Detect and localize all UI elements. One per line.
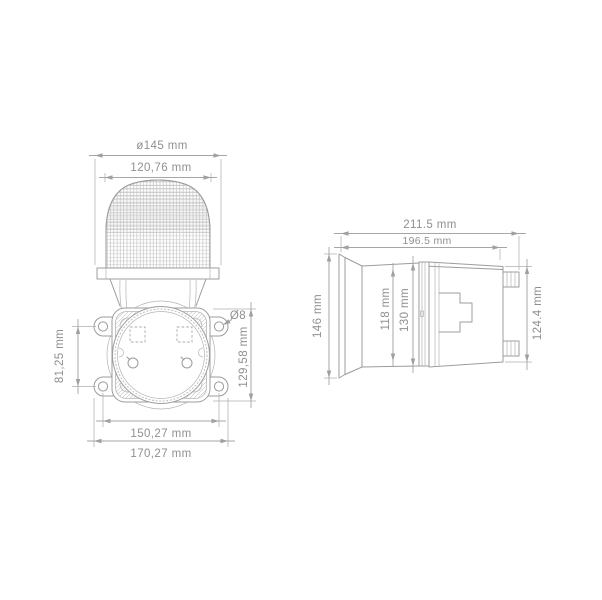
bracket-top <box>503 272 519 287</box>
dim-label-flange-diameter: ø145 mm <box>136 140 187 152</box>
side-view: 211.5 mm 196.5 mm 146 mm 118 mm 130 mm <box>312 219 544 385</box>
bracket-bottom <box>503 341 519 356</box>
dim-label-front-diameter: 146 mm <box>312 294 324 338</box>
beacon-lamp-dimension-drawing: ø145 mm 120,76 mm 81,25 mm 129,58 mm Ø8 <box>0 0 602 600</box>
dim-lens-height: 118 mm <box>380 263 393 367</box>
housing-boss <box>439 293 472 332</box>
hole-top-right <box>214 322 223 331</box>
lens-base-circle <box>113 307 210 404</box>
dome-lens <box>106 180 210 268</box>
dim-label-overall-length: 211.5 mm <box>403 219 456 231</box>
dim-hole-diameter: Ø8 <box>223 310 246 325</box>
hole-bottom-left <box>98 382 107 391</box>
dim-label-hole-spacing-vertical: 81,25 mm <box>54 329 66 383</box>
dim-label-hole-diameter: Ø8 <box>230 310 246 322</box>
dim-label-body-length: 196.5 mm <box>402 235 451 247</box>
front-view: ø145 mm 120,76 mm 81,25 mm 129,58 mm Ø8 <box>54 140 256 460</box>
dim-plate-height-side: 130 mm <box>399 256 413 373</box>
hole-bottom-right <box>214 382 223 391</box>
dome-cone <box>345 258 362 375</box>
hole-top-left <box>98 322 107 331</box>
technical-drawing-page: ø145 mm 120,76 mm 81,25 mm 129,58 mm Ø8 <box>0 0 602 600</box>
dim-label-housing-height: 124.4 mm <box>532 286 544 340</box>
dome-flange <box>97 268 219 279</box>
plate-side <box>419 262 429 366</box>
dim-label-lens-width: 120,76 mm <box>130 162 191 174</box>
dim-label-lens-height: 118 mm <box>380 287 392 330</box>
dim-label-plate-height-side: 130 mm <box>399 288 411 332</box>
dim-lens-width: 120,76 mm <box>99 162 217 182</box>
dim-hole-spacing-vertical: 81,25 mm <box>54 319 96 394</box>
housing-side <box>429 262 519 367</box>
dim-body-length: 196.5 mm <box>334 235 507 260</box>
dim-label-plate-height: 129,58 mm <box>238 326 250 387</box>
dim-front-diameter: 146 mm <box>312 247 337 385</box>
dim-label-hole-spacing-horizontal: 150,27 mm <box>130 428 191 440</box>
dim-label-overall-width: 170,27 mm <box>130 448 191 460</box>
dome-front-face <box>339 254 345 378</box>
